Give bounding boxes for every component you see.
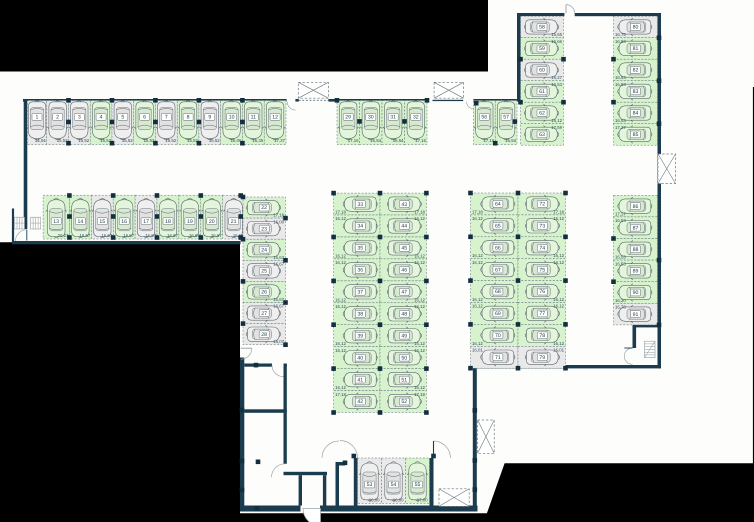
svg-text:16,12: 16,12 [472, 304, 483, 309]
svg-text:45: 45 [401, 246, 407, 252]
svg-text:16,67: 16,67 [123, 233, 134, 238]
svg-text:16,12: 16,12 [472, 341, 483, 346]
svg-text:14: 14 [78, 219, 84, 225]
svg-text:16,12: 16,12 [335, 385, 346, 390]
svg-text:16,00: 16,00 [273, 219, 284, 224]
svg-text:53: 53 [367, 482, 373, 488]
svg-text:49: 49 [401, 333, 407, 339]
svg-text:16,53: 16,53 [615, 255, 626, 260]
svg-text:17,18: 17,18 [414, 392, 425, 397]
svg-text:15,52: 15,52 [78, 138, 89, 143]
svg-text:16,12: 16,12 [414, 216, 425, 221]
svg-text:17,16: 17,16 [348, 138, 359, 143]
svg-text:16,78: 16,78 [615, 305, 626, 310]
svg-text:17,37: 17,37 [274, 138, 285, 143]
svg-text:16,12: 16,12 [414, 304, 425, 309]
svg-text:35: 35 [357, 246, 363, 252]
svg-text:16,12: 16,12 [553, 341, 564, 346]
svg-text:16,54: 16,54 [370, 138, 381, 143]
svg-text:16,20: 16,20 [615, 298, 626, 303]
svg-text:65: 65 [495, 224, 501, 230]
svg-text:4: 4 [100, 115, 103, 121]
svg-text:25: 25 [261, 269, 267, 275]
svg-text:87: 87 [633, 225, 639, 231]
svg-text:58: 58 [539, 25, 545, 31]
svg-text:75: 75 [539, 267, 545, 273]
svg-text:15: 15 [99, 219, 105, 225]
svg-text:16,67: 16,67 [167, 233, 178, 238]
svg-text:16,12: 16,12 [335, 348, 346, 353]
svg-text:16,53: 16,53 [615, 75, 626, 80]
svg-text:16,12: 16,12 [335, 297, 346, 302]
svg-text:78: 78 [539, 333, 545, 339]
svg-text:17,37: 17,37 [615, 211, 626, 216]
svg-text:15,52: 15,52 [122, 138, 133, 143]
svg-text:15,52: 15,52 [209, 138, 220, 143]
svg-text:17,18: 17,18 [335, 392, 346, 397]
svg-text:16,12: 16,12 [414, 341, 425, 346]
svg-text:74: 74 [539, 245, 545, 251]
svg-text:37: 37 [357, 290, 363, 296]
svg-text:17,18: 17,18 [335, 210, 346, 215]
svg-text:44: 44 [401, 224, 407, 230]
svg-text:21: 21 [231, 219, 237, 225]
svg-text:81: 81 [633, 46, 639, 52]
svg-text:85: 85 [633, 132, 639, 138]
svg-text:80: 80 [633, 25, 639, 31]
svg-text:17,18: 17,18 [414, 210, 425, 215]
svg-text:42: 42 [357, 399, 363, 405]
svg-text:17,18: 17,18 [472, 209, 483, 214]
svg-text:55: 55 [415, 482, 421, 488]
svg-text:71: 71 [495, 355, 501, 361]
svg-text:26: 26 [261, 290, 267, 296]
svg-text:16,67: 16,67 [80, 233, 91, 238]
svg-text:16,12: 16,12 [553, 253, 564, 258]
svg-text:50: 50 [401, 355, 407, 361]
svg-text:17,37: 17,37 [615, 125, 626, 130]
svg-text:40: 40 [357, 355, 363, 361]
svg-text:70: 70 [495, 333, 501, 339]
svg-text:16,66: 16,66 [551, 39, 562, 44]
svg-text:63: 63 [539, 132, 545, 138]
svg-text:23: 23 [261, 226, 267, 232]
svg-text:11: 11 [251, 115, 256, 121]
svg-text:16,54: 16,54 [393, 138, 404, 143]
svg-text:30: 30 [368, 115, 374, 121]
svg-text:16,54: 16,54 [505, 138, 516, 143]
svg-text:16,35: 16,35 [252, 138, 263, 143]
svg-text:5: 5 [121, 115, 124, 121]
svg-text:16,01: 16,01 [553, 348, 564, 353]
svg-text:16,12: 16,12 [335, 260, 346, 265]
svg-text:29: 29 [345, 115, 351, 121]
svg-text:16,12: 16,12 [335, 253, 346, 258]
svg-text:91: 91 [633, 312, 639, 318]
svg-text:17,00: 17,00 [417, 498, 428, 503]
svg-text:16,12: 16,12 [551, 118, 562, 123]
svg-text:16,12: 16,12 [335, 216, 346, 221]
svg-text:17,16: 17,16 [415, 138, 426, 143]
svg-text:69: 69 [495, 311, 501, 317]
svg-text:16,27: 16,27 [551, 75, 562, 80]
svg-text:16,12: 16,12 [472, 297, 483, 302]
svg-text:16,53: 16,53 [551, 82, 562, 87]
svg-text:17,18: 17,18 [553, 209, 564, 214]
svg-text:64: 64 [495, 202, 501, 208]
svg-text:20: 20 [209, 219, 215, 225]
svg-text:16,12: 16,12 [335, 341, 346, 346]
svg-text:56: 56 [481, 115, 487, 121]
svg-text:16,65: 16,65 [551, 32, 562, 37]
svg-text:16,12: 16,12 [553, 297, 564, 302]
svg-text:38: 38 [357, 312, 363, 318]
svg-text:16,00: 16,00 [393, 498, 404, 503]
svg-text:79: 79 [539, 355, 545, 361]
svg-text:16,12: 16,12 [414, 297, 425, 302]
svg-text:39: 39 [357, 333, 363, 339]
svg-text:33: 33 [357, 202, 363, 208]
svg-text:89: 89 [633, 269, 639, 275]
svg-text:57: 57 [503, 115, 509, 121]
svg-text:72: 72 [539, 202, 545, 208]
svg-text:16,12: 16,12 [553, 304, 564, 309]
svg-text:9: 9 [208, 115, 211, 121]
svg-text:32: 32 [413, 115, 419, 121]
svg-text:24: 24 [261, 247, 267, 253]
svg-text:13: 13 [53, 219, 59, 225]
svg-text:76: 76 [539, 289, 545, 295]
svg-text:16,12: 16,12 [414, 348, 425, 353]
svg-text:16,12: 16,12 [553, 260, 564, 265]
svg-text:7: 7 [165, 115, 168, 121]
svg-text:62: 62 [539, 111, 545, 117]
svg-text:66: 66 [495, 245, 501, 251]
svg-text:77: 77 [539, 311, 545, 317]
svg-text:28: 28 [261, 332, 267, 338]
svg-text:86: 86 [633, 204, 639, 210]
svg-text:12: 12 [272, 115, 278, 121]
svg-text:34: 34 [357, 224, 363, 230]
svg-text:16,67: 16,67 [273, 297, 284, 302]
svg-text:1: 1 [36, 115, 39, 121]
svg-text:31: 31 [390, 115, 396, 121]
svg-text:16,63: 16,63 [273, 255, 284, 260]
svg-text:18: 18 [165, 219, 171, 225]
svg-text:17,59: 17,59 [551, 125, 562, 130]
svg-text:16,12: 16,12 [553, 216, 564, 221]
svg-text:16,12: 16,12 [472, 216, 483, 221]
svg-text:47: 47 [401, 290, 407, 296]
svg-text:16,53: 16,53 [615, 261, 626, 266]
svg-text:6: 6 [143, 115, 146, 121]
svg-text:16,12: 16,12 [414, 260, 425, 265]
svg-text:16,12: 16,12 [414, 253, 425, 258]
svg-text:16,12: 16,12 [335, 304, 346, 309]
svg-text:8: 8 [187, 115, 190, 121]
svg-text:17: 17 [143, 219, 149, 225]
svg-text:17,18: 17,18 [273, 213, 284, 218]
svg-text:84: 84 [633, 111, 639, 117]
svg-text:48: 48 [401, 312, 407, 318]
svg-text:16,12: 16,12 [472, 253, 483, 258]
svg-text:73: 73 [539, 224, 545, 230]
svg-text:41: 41 [357, 377, 363, 383]
svg-text:27: 27 [261, 311, 267, 317]
svg-text:46: 46 [401, 268, 407, 274]
svg-text:14,04: 14,04 [35, 138, 46, 143]
svg-text:54: 54 [391, 482, 397, 488]
svg-text:16,67: 16,67 [273, 304, 284, 309]
svg-text:16,07: 16,07 [273, 339, 284, 344]
svg-text:16,00: 16,00 [369, 498, 380, 503]
svg-text:52: 52 [401, 399, 407, 405]
svg-text:16,53: 16,53 [615, 82, 626, 87]
svg-text:51: 51 [401, 377, 407, 383]
svg-text:3: 3 [78, 115, 81, 121]
svg-text:16,01: 16,01 [472, 348, 483, 353]
svg-text:16: 16 [121, 219, 127, 225]
svg-text:88: 88 [633, 247, 639, 253]
svg-text:43: 43 [401, 202, 407, 208]
svg-text:36: 36 [357, 268, 363, 274]
svg-text:19: 19 [187, 219, 193, 225]
svg-text:16,75: 16,75 [615, 32, 626, 37]
svg-text:83: 83 [633, 89, 639, 95]
svg-text:82: 82 [633, 68, 639, 74]
svg-text:2: 2 [56, 115, 59, 121]
svg-text:59: 59 [539, 46, 545, 52]
svg-text:16,67: 16,67 [211, 233, 222, 238]
svg-text:68: 68 [495, 289, 501, 295]
svg-text:16,67: 16,67 [273, 262, 284, 267]
svg-text:10: 10 [229, 115, 235, 121]
svg-text:90: 90 [633, 290, 639, 296]
svg-text:16,53: 16,53 [615, 118, 626, 123]
svg-text:16,12: 16,12 [414, 385, 425, 390]
svg-text:16,53: 16,53 [615, 39, 626, 44]
svg-text:61: 61 [539, 89, 545, 95]
svg-text:15,52: 15,52 [165, 138, 176, 143]
svg-text:67: 67 [495, 267, 501, 273]
svg-text:22: 22 [261, 205, 267, 211]
svg-text:60: 60 [539, 68, 545, 74]
svg-text:16,53: 16,53 [615, 218, 626, 223]
svg-text:16,12: 16,12 [472, 260, 483, 265]
